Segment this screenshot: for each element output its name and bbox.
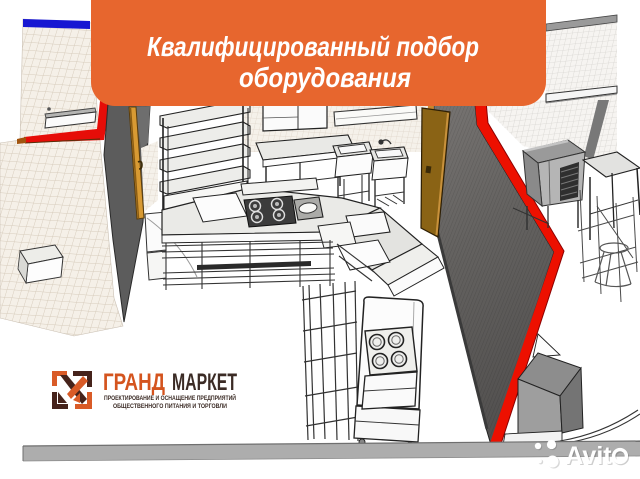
svg-text:Квалифицированный подбор: Квалифицированный подбор [147, 31, 479, 62]
svg-text:ОБЩЕСТВЕННОГО ПИТАНИЯ И ТОРГОВ: ОБЩЕСТВЕННОГО ПИТАНИЯ И ТОРГОВЛИ [113, 403, 227, 410]
svg-text:МАРКЕТ: МАРКЕТ [172, 369, 237, 396]
svg-text:ГРАНД: ГРАНД [103, 369, 165, 396]
svg-text:ПРОЕКТИРОВАНИЕ И ОСНАЩЕНИЕ ПРЕ: ПРОЕКТИРОВАНИЕ И ОСНАЩЕНИЕ ПРЕДПРИЯТИЙ [104, 393, 236, 402]
svg-text:Avit: Avit [565, 442, 612, 470]
svg-text:оборудования: оборудования [239, 62, 411, 93]
